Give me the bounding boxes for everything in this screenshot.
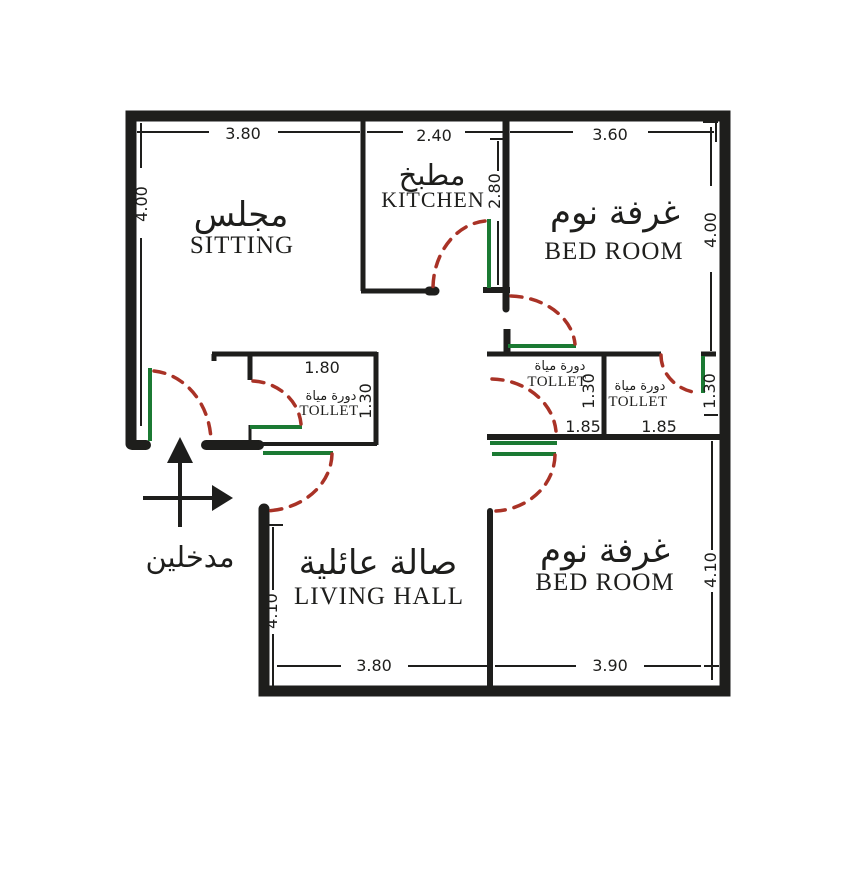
dim-top-kitchen: 2.40 <box>416 126 452 145</box>
toilet-right-label-arabic: دورة مياة <box>615 379 666 394</box>
kitchen-label-english: KITCHEN <box>381 187 485 212</box>
entrance-arrows <box>143 437 233 527</box>
floor-plan-drawing: 3.80 2.40 3.60 4.00 2.80 4.00 1.80 1.30 … <box>0 0 860 872</box>
dim-bottom-bedroom: 3.90 <box>592 656 628 675</box>
dim-top-bedroom: 3.60 <box>592 125 628 144</box>
toilet-left-label-english: TOLLET <box>299 403 358 419</box>
dim-left-sitting: 4.00 <box>132 186 151 222</box>
toilet-left-label-arabic: دورة مياة <box>306 389 357 404</box>
toilet-mid-label-arabic: دورة مياة <box>535 359 586 374</box>
sitting-door-arc <box>154 371 211 442</box>
floor-plan-page: 3.80 2.40 3.60 4.00 2.80 4.00 1.80 1.30 … <box>0 0 860 872</box>
bedroom-top-label-arabic: غرفة نوم <box>550 193 680 233</box>
entrance-label: مدخلين <box>145 540 234 574</box>
bedroom1-door-arc <box>511 296 575 344</box>
dim-toilet-left-width: 1.80 <box>304 358 340 377</box>
dim-toilet-left-depth: 1.30 <box>356 383 375 419</box>
toilet-right-label-english: TOLLET <box>608 394 667 410</box>
dim-right-bedroom-bottom: 4.10 <box>701 552 720 588</box>
bedroom2-door-arc <box>496 455 555 511</box>
toilet-mid-label-english: TOLLET <box>527 374 586 390</box>
living-hall-label-arabic: صالة عائلية <box>299 543 457 583</box>
kitchen-door-arc <box>433 221 485 287</box>
bedroom-top-label-english: BED ROOM <box>544 238 683 265</box>
dim-toilet-mid-width: 1.85 <box>565 417 601 436</box>
entrance-arrow-up-icon <box>167 437 193 463</box>
sitting-label-english: SITTING <box>190 232 294 259</box>
dim-right-bedroom-top: 4.00 <box>701 212 720 248</box>
dim-bottom-hall: 3.80 <box>356 656 392 675</box>
entrance-arrow-right-icon <box>212 485 233 511</box>
dim-hall-depth: 4.10 <box>262 593 281 629</box>
living-hall-label-english: LIVING HALL <box>294 583 464 610</box>
dim-toilet-right-width: 1.85 <box>641 417 677 436</box>
bedroom-bottom-label-english: BED ROOM <box>535 569 674 596</box>
right-toilet-door-arc <box>661 355 700 393</box>
dim-toilet-right-depth: 1.30 <box>700 373 719 409</box>
dim-top-sitting: 3.80 <box>225 124 261 143</box>
dim-kitchen-depth: 2.80 <box>485 173 504 209</box>
left-toilet-door-arc <box>253 381 301 424</box>
bedroom-bottom-label-arabic: غرفة نوم <box>540 531 670 571</box>
living-hall-door-arc <box>266 454 332 511</box>
sitting-label-arabic: مجلس <box>194 195 289 235</box>
